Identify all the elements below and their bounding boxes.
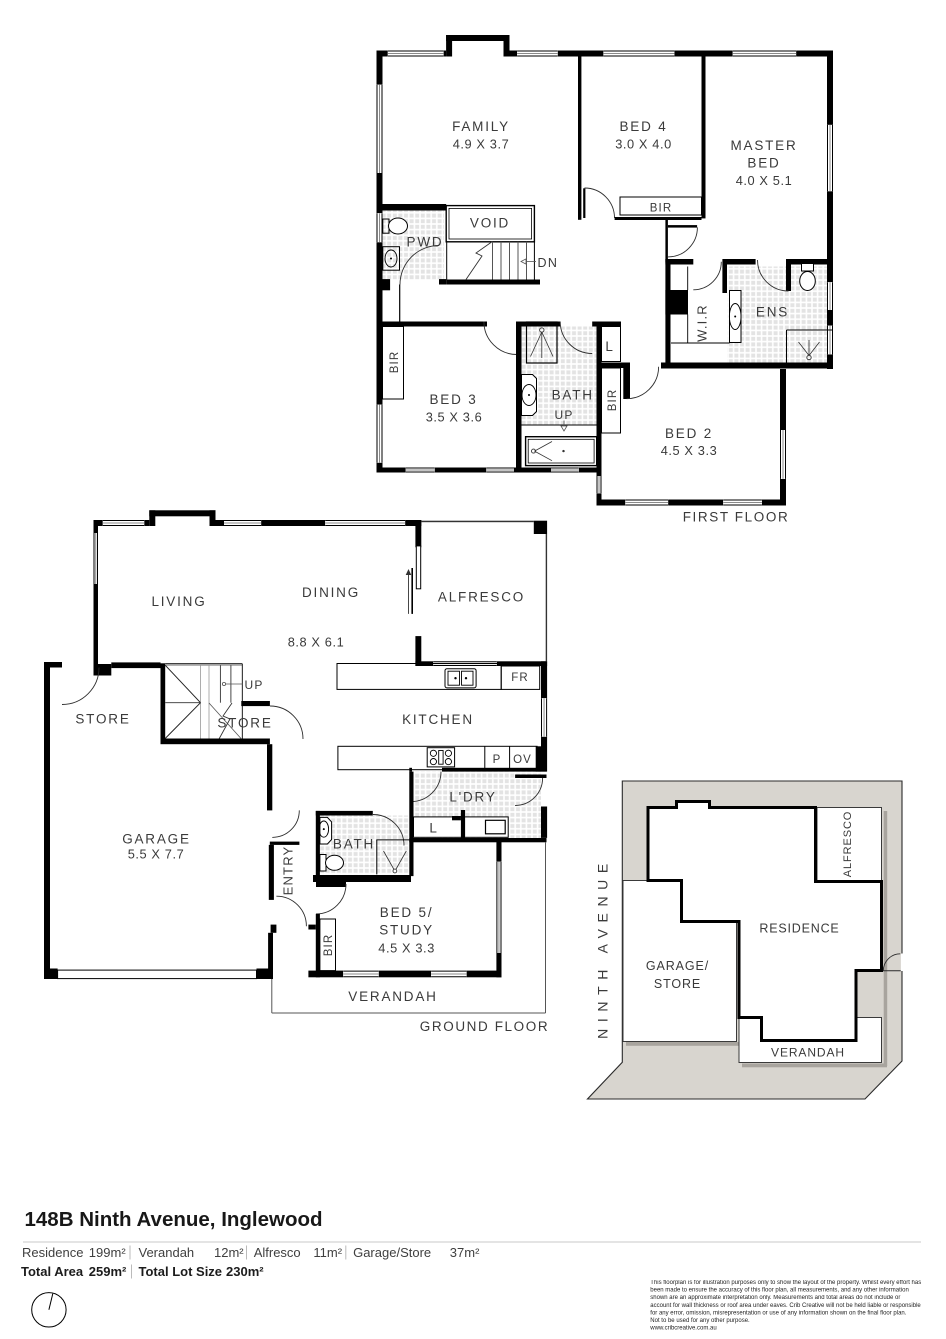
svg-text:UP: UP [554, 408, 573, 422]
svg-text:W.I.R: W.I.R [694, 304, 709, 342]
svg-text:Residence: Residence [22, 1245, 83, 1260]
svg-text:STORE: STORE [75, 712, 130, 727]
svg-text:4.0 X 5.1: 4.0 X 5.1 [736, 173, 793, 188]
svg-text:ENS: ENS [756, 305, 789, 320]
svg-text:VERANDAH: VERANDAH [771, 1046, 845, 1060]
svg-text:4.9 X 3.7: 4.9 X 3.7 [453, 136, 510, 151]
svg-text:BED: BED [747, 156, 780, 171]
svg-text:RESIDENCE: RESIDENCE [759, 921, 839, 935]
svg-text:STUDY: STUDY [379, 923, 434, 938]
svg-text:NINTH AVENUE: NINTH AVENUE [595, 857, 611, 1039]
svg-text:GROUND FLOOR: GROUND FLOOR [420, 1019, 549, 1034]
svg-text:been made to ensure the accura: been made to ensure the accuracy of this… [650, 1288, 908, 1294]
svg-text:BED 4: BED 4 [619, 119, 667, 134]
svg-text:Not to be used for any other p: Not to be used for any other purpose. [650, 1318, 750, 1324]
svg-text:L: L [429, 821, 438, 836]
svg-text:BIR: BIR [607, 389, 619, 411]
svg-text:4.5 X 3.3: 4.5 X 3.3 [661, 443, 718, 458]
svg-text:259m²: 259m² [89, 1264, 127, 1279]
svg-text:This floorplan is for illustra: This floorplan is for illustration purpo… [650, 1280, 921, 1286]
svg-text:148B Ninth Avenue, Inglewood: 148B Ninth Avenue, Inglewood [25, 1208, 323, 1231]
svg-text:L: L [605, 339, 614, 354]
svg-text:BED 5/: BED 5/ [380, 905, 434, 920]
svg-text:3.5 X 3.6: 3.5 X 3.6 [426, 409, 483, 424]
svg-text:LIVING: LIVING [151, 594, 206, 609]
svg-text:FR: FR [511, 672, 529, 684]
svg-text:BIR: BIR [650, 202, 672, 214]
svg-text:KITCHEN: KITCHEN [402, 712, 474, 727]
svg-text:BIR: BIR [323, 934, 335, 956]
svg-text:ENTRY: ENTRY [280, 846, 295, 896]
svg-text:account for wall thickness or: account for wall thickness or roof area … [650, 1303, 921, 1309]
svg-text:BIR: BIR [389, 351, 401, 373]
svg-text:4.5 X 3.3: 4.5 X 3.3 [378, 940, 435, 955]
svg-text:www.cribcreative.com.au: www.cribcreative.com.au [649, 1325, 716, 1331]
svg-text:VERANDAH: VERANDAH [348, 989, 437, 1004]
svg-text:BATH: BATH [333, 837, 375, 852]
svg-text:shown are an approximate inter: shown are an approximate interpretation … [650, 1295, 900, 1301]
svg-text:PWD: PWD [407, 235, 444, 250]
svg-text:11m²: 11m² [313, 1245, 342, 1260]
svg-text:UP: UP [245, 678, 264, 692]
svg-text:BED 3: BED 3 [429, 392, 477, 407]
svg-text:37m²: 37m² [450, 1245, 480, 1260]
svg-text:DN: DN [538, 256, 559, 270]
svg-text:Total Lot Size: Total Lot Size [139, 1264, 223, 1279]
svg-text:ALFRESCO: ALFRESCO [438, 590, 525, 605]
svg-text:Alfresco: Alfresco [254, 1245, 301, 1260]
svg-text:P: P [493, 754, 502, 766]
svg-text:Total Area: Total Area [21, 1264, 84, 1279]
svg-text:GARAGE: GARAGE [122, 832, 191, 847]
svg-text:Garage/Store: Garage/Store [353, 1245, 431, 1260]
svg-text:BATH: BATH [552, 388, 594, 403]
svg-text:230m²: 230m² [226, 1264, 264, 1279]
svg-text:FAMILY: FAMILY [452, 119, 510, 134]
svg-text:12m²: 12m² [214, 1245, 244, 1260]
svg-text:STORE: STORE [654, 977, 701, 991]
svg-text:VOID: VOID [470, 216, 510, 231]
svg-text:L'DRY: L'DRY [449, 790, 496, 805]
svg-text:for any error, omission, misre: for any error, omission, misrepresentati… [650, 1310, 906, 1316]
svg-text:GARAGE/: GARAGE/ [646, 959, 709, 973]
svg-text:Verandah: Verandah [139, 1245, 195, 1260]
svg-text:199m²: 199m² [89, 1245, 127, 1260]
svg-text:5.5 X 7.7: 5.5 X 7.7 [128, 846, 185, 861]
svg-text:8.8 X 6.1: 8.8 X 6.1 [288, 634, 345, 649]
svg-text:STORE: STORE [217, 716, 272, 731]
svg-text:ALFRESCO: ALFRESCO [842, 811, 854, 878]
svg-text:DINING: DINING [302, 585, 360, 600]
svg-text:FIRST FLOOR: FIRST FLOOR [683, 510, 790, 525]
svg-text:3.0 X 4.0: 3.0 X 4.0 [615, 136, 672, 151]
svg-text:OV: OV [513, 754, 532, 766]
svg-text:BED 2: BED 2 [665, 426, 713, 441]
svg-text:MASTER: MASTER [730, 138, 797, 153]
